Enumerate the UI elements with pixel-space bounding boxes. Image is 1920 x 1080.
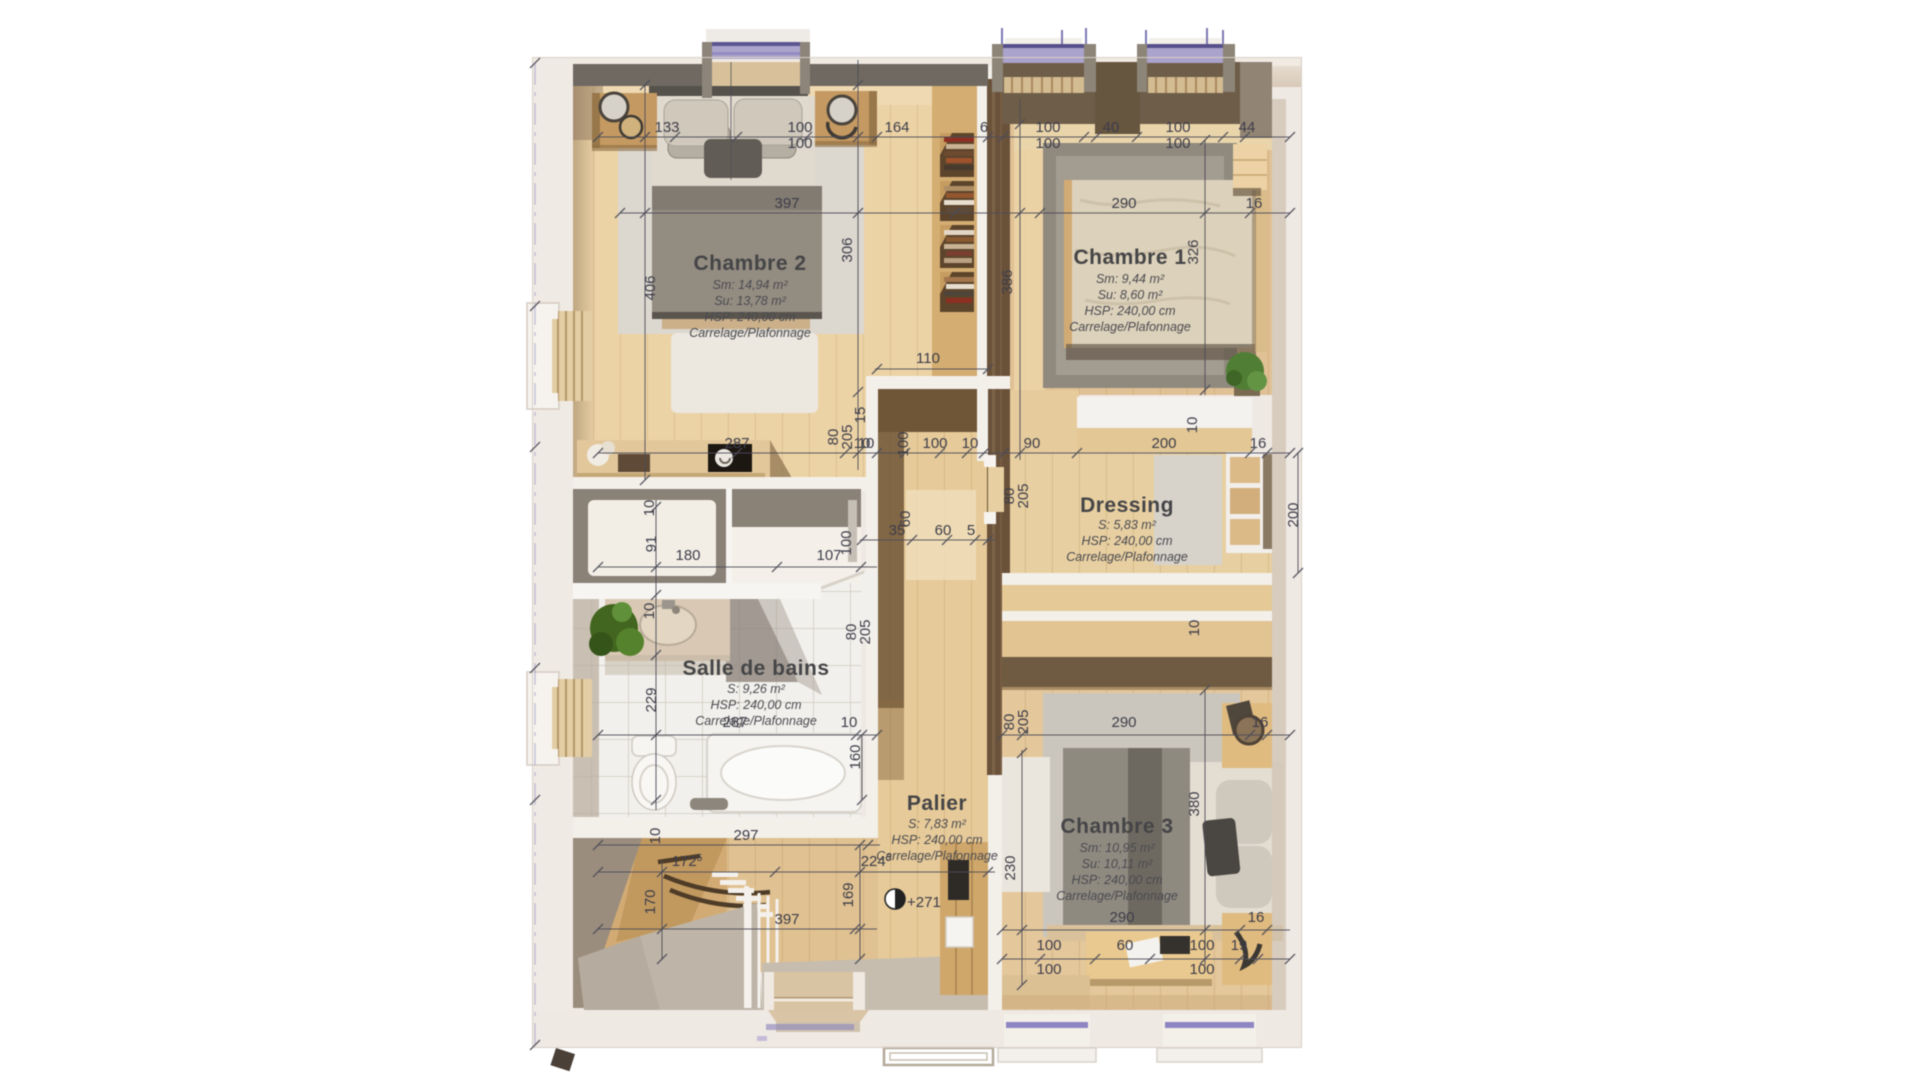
svg-text:380: 380 — [1186, 791, 1203, 816]
svg-text:Carrelage/Plafonnage: Carrelage/Plafonnage — [876, 849, 998, 863]
svg-text:100: 100 — [1036, 961, 1061, 978]
svg-text:19: 19 — [1231, 937, 1248, 954]
svg-text:326: 326 — [1185, 239, 1202, 264]
svg-text:205: 205 — [857, 619, 874, 644]
svg-text:205: 205 — [1015, 709, 1032, 734]
svg-text:230: 230 — [1002, 855, 1019, 880]
svg-text:297: 297 — [733, 827, 758, 844]
svg-text:180: 180 — [675, 547, 700, 564]
svg-text:Sm: 14,94 m²: Sm: 14,94 m² — [712, 278, 788, 292]
svg-text:10: 10 — [1184, 417, 1201, 434]
svg-text:16: 16 — [1248, 909, 1265, 926]
svg-text:100: 100 — [1165, 119, 1190, 136]
svg-text:205: 205 — [1015, 483, 1032, 508]
svg-text:406: 406 — [642, 275, 659, 300]
svg-text:Carrelage/Plafonnage: Carrelage/Plafonnage — [1056, 889, 1178, 903]
svg-text:Carrelage/Plafonnage: Carrelage/Plafonnage — [695, 714, 817, 728]
svg-text:6: 6 — [980, 119, 988, 136]
svg-text:100: 100 — [1189, 937, 1214, 954]
svg-text:100: 100 — [895, 431, 912, 456]
svg-text:5: 5 — [967, 522, 975, 539]
svg-text:91: 91 — [643, 536, 660, 553]
svg-text:200: 200 — [1151, 435, 1176, 452]
svg-text:S: 9,26 m²: S: 9,26 m² — [727, 682, 785, 696]
svg-text:44: 44 — [1239, 119, 1256, 136]
svg-text:10: 10 — [647, 828, 664, 845]
svg-text:205: 205 — [839, 424, 856, 449]
svg-text:Chambre 3: Chambre 3 — [1060, 815, 1173, 838]
svg-text:HSP: 240,00 cm: HSP: 240,00 cm — [710, 698, 801, 712]
svg-text:HSP: 240,00 cm: HSP: 240,00 cm — [1084, 304, 1175, 318]
svg-text:Salle de bains: Salle de bains — [682, 657, 829, 680]
svg-text:60: 60 — [935, 522, 952, 539]
svg-text:10: 10 — [841, 714, 858, 731]
svg-text:60: 60 — [897, 511, 914, 528]
svg-text:100: 100 — [838, 530, 855, 555]
svg-text:164: 164 — [884, 119, 909, 136]
svg-text:290: 290 — [1111, 195, 1136, 212]
svg-text:HSP: 240,00 cm: HSP: 240,00 cm — [1081, 534, 1172, 548]
svg-text:HSP: 240,00 cm: HSP: 240,00 cm — [704, 310, 795, 324]
svg-text:100: 100 — [1189, 961, 1214, 978]
svg-text:160: 160 — [847, 744, 864, 769]
svg-text:100: 100 — [787, 119, 812, 136]
svg-text:290: 290 — [1111, 714, 1136, 731]
svg-text:10: 10 — [1186, 620, 1203, 637]
svg-text:100: 100 — [1036, 937, 1061, 954]
svg-text:Carrelage/Plafonnage: Carrelage/Plafonnage — [1069, 320, 1191, 334]
svg-text:10: 10 — [641, 500, 658, 517]
svg-text:S: 5,83 m²: S: 5,83 m² — [1098, 518, 1156, 532]
svg-text:10: 10 — [962, 435, 979, 452]
svg-text:100: 100 — [1165, 135, 1190, 152]
svg-text:+271: +271 — [907, 894, 941, 911]
svg-text:Dressing: Dressing — [1080, 494, 1174, 517]
svg-text:397: 397 — [774, 911, 799, 928]
svg-text:Sm: 10,95 m²: Sm: 10,95 m² — [1079, 841, 1155, 855]
svg-text:90: 90 — [1024, 435, 1041, 452]
svg-text:Carrelage/Plafonnage: Carrelage/Plafonnage — [1066, 550, 1188, 564]
svg-text:306: 306 — [839, 237, 856, 262]
svg-text:Su: 13,78 m²: Su: 13,78 m² — [714, 294, 786, 308]
svg-text:Carrelage/Plafonnage: Carrelage/Plafonnage — [689, 326, 811, 340]
svg-text:HSP: 240,00 cm: HSP: 240,00 cm — [891, 833, 982, 847]
svg-text:Su: 10,11 m²: Su: 10,11 m² — [1082, 857, 1153, 871]
svg-text:Su: 8,60 m²: Su: 8,60 m² — [1098, 288, 1163, 302]
svg-text:60: 60 — [1117, 937, 1134, 954]
svg-text:16: 16 — [1250, 435, 1267, 452]
svg-text:170: 170 — [642, 889, 659, 914]
svg-text:Palier: Palier — [907, 792, 967, 815]
svg-text:200: 200 — [1285, 502, 1302, 527]
svg-text:15: 15 — [852, 407, 869, 424]
svg-text:100: 100 — [922, 435, 947, 452]
svg-text:40: 40 — [1103, 119, 1120, 136]
svg-text:S: 7,83 m²: S: 7,83 m² — [908, 817, 966, 831]
svg-text:Sm: 9,44 m²: Sm: 9,44 m² — [1096, 272, 1165, 286]
svg-text:169: 169 — [840, 882, 857, 907]
svg-text:397: 397 — [774, 195, 799, 212]
svg-text:100: 100 — [1035, 135, 1060, 152]
svg-text:229: 229 — [643, 687, 660, 712]
svg-text:100: 100 — [787, 135, 812, 152]
svg-text:Chambre 2: Chambre 2 — [693, 252, 806, 275]
svg-text:10: 10 — [641, 603, 658, 620]
svg-text:Chambre 1: Chambre 1 — [1073, 246, 1186, 269]
svg-text:16: 16 — [1246, 195, 1263, 212]
svg-text:HSP: 240,00 cm: HSP: 240,00 cm — [1071, 873, 1162, 887]
svg-text:100: 100 — [1035, 119, 1060, 136]
svg-text:386: 386 — [999, 269, 1016, 294]
svg-text:290: 290 — [1109, 909, 1134, 926]
svg-text:16: 16 — [1252, 714, 1269, 731]
svg-text:287: 287 — [724, 435, 749, 452]
svg-text:110: 110 — [916, 350, 940, 367]
svg-text:10: 10 — [854, 435, 871, 452]
svg-text:133: 133 — [654, 119, 679, 136]
